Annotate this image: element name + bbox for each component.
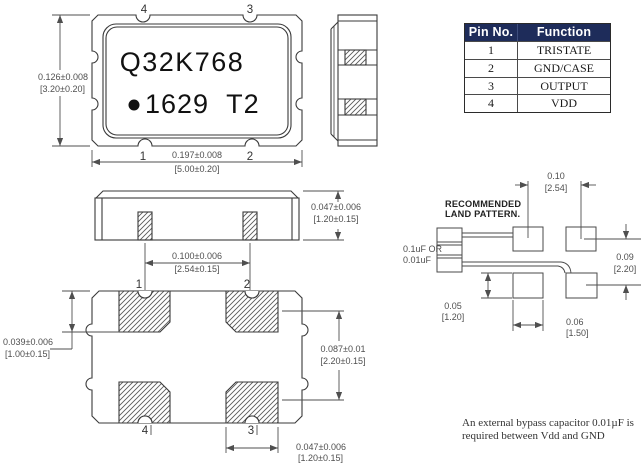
pin-function-table: Pin No. Function 1 TRISTATE 2 GND/CASE 3… — [464, 23, 611, 113]
note-line2: required between Vdd and GND — [462, 430, 644, 443]
dim-pad-width-mm: [1.20±0.15] — [298, 453, 343, 463]
pin1-indicator-dot — [129, 100, 140, 111]
table-row: 4 VDD — [465, 94, 610, 112]
note-line1: An external bypass capacitor 0.01µF is — [462, 417, 644, 430]
pin-table-header-pin: Pin No. — [465, 24, 517, 41]
capacitor-traces — [462, 233, 571, 273]
pin-label-4: 4 — [141, 4, 148, 16]
dim-pad-length-in: 0.039±0.006 — [3, 337, 53, 347]
dim-pad-width-in: 0.047±0.006 — [296, 442, 346, 452]
part-marking-line1: Q32K768 — [120, 47, 245, 77]
pin-label-3: 3 — [247, 4, 253, 16]
dim-side-height-mm: [1.20±0.15] — [314, 214, 359, 224]
dim-row-pitch-mm: [2.20±0.15] — [321, 356, 366, 366]
dim-lp-pitch-y-in: 0.09 — [616, 252, 634, 262]
side-view-dimension-text: 0.047±0.006 [1.20±0.15] 0.100±0.006 [2.5… — [172, 202, 361, 274]
lid-outline-outer — [103, 24, 291, 138]
land-pattern-title-line1: RECOMMENDED — [445, 199, 521, 209]
land-pad-4 — [513, 273, 543, 298]
top-view-pin-labels: 4 3 1 2 — [140, 4, 253, 163]
dim-lp-pitch-y-mm: [2.20] — [614, 264, 637, 274]
pin-label-1: 1 — [136, 279, 142, 291]
oscillator-datasheet-drawing: Q32K768 1629 T2 4 3 1 2 0.126±0.008 [3.2… — [0, 0, 644, 463]
pin-label-3: 3 — [248, 425, 254, 437]
bottom-view-dimensions — [50, 291, 344, 453]
pin-number: 3 — [465, 78, 517, 95]
table-row: 1 TRISTATE — [465, 41, 610, 59]
top-view-marking: Q32K768 1629 T2 — [120, 47, 260, 119]
dim-top-height-in: 0.126±0.008 — [38, 72, 88, 82]
dim-lp-pitch-x-mm: [2.54] — [545, 183, 568, 193]
capacitor-value-line2: 0.01uF — [403, 255, 432, 265]
land-pattern-drawing — [437, 227, 597, 298]
part-marking-line2: 1629 T2 — [145, 89, 260, 119]
pin-label-1: 1 — [140, 151, 146, 163]
top-view-drawing — [92, 15, 302, 146]
dim-pad-length-mm: [1.00±0.15] — [5, 349, 50, 359]
side-view-front-drawing — [95, 191, 299, 240]
dim-lp-pad-width-mm: [1.50] — [566, 328, 589, 338]
castellation-pad — [345, 50, 366, 65]
dim-top-width-in: 0.197±0.008 — [172, 150, 222, 160]
package-outline — [92, 15, 302, 146]
table-row: 3 OUTPUT — [465, 77, 610, 95]
pin-number: 1 — [465, 42, 517, 59]
pin-label-2: 2 — [244, 279, 250, 291]
dim-side-height-in: 0.047±0.006 — [311, 202, 361, 212]
pin-label-4: 4 — [142, 425, 149, 437]
dim-pad-pitch-in: 0.100±0.006 — [172, 251, 222, 261]
pin-number: 2 — [465, 60, 517, 77]
side-view-right-drawing — [331, 15, 377, 146]
land-pattern-title-line2: LAND PATTERN. — [445, 209, 520, 219]
dim-lp-pad-height-in: 0.05 — [444, 301, 462, 311]
dim-lp-pad-width-in: 0.06 — [566, 317, 584, 327]
solder-pad — [138, 212, 152, 240]
dim-row-pitch-in: 0.087±0.01 — [321, 344, 366, 354]
pin-function: GND/CASE — [517, 60, 610, 77]
bypass-capacitor-note: An external bypass capacitor 0.01µF is r… — [462, 417, 644, 443]
castellation-pad — [345, 99, 366, 115]
dim-pad-pitch-mm: [2.54±0.15] — [175, 264, 220, 274]
pin-function: VDD — [517, 95, 610, 112]
bottom-view-drawing — [86, 291, 308, 423]
pin-label-2: 2 — [247, 151, 253, 163]
pin-function: TRISTATE — [517, 42, 610, 59]
dim-lp-pitch-x-in: 0.10 — [547, 171, 565, 181]
capacitor-value-line1: 0.1uF OR — [403, 244, 443, 254]
pin-number: 4 — [465, 95, 517, 112]
top-view-dimension-text: 0.126±0.008 [3.20±0.20] 0.197±0.008 [5.0… — [38, 72, 222, 174]
pin-table-header-row: Pin No. Function — [465, 24, 610, 41]
table-row: 2 GND/CASE — [465, 59, 610, 77]
solder-pad — [243, 212, 257, 240]
pin-function: OUTPUT — [517, 78, 610, 95]
dim-lp-pad-height-mm: [1.20] — [442, 312, 465, 322]
land-pad-3 — [566, 273, 597, 298]
lid-profile — [96, 191, 298, 198]
dim-top-height-mm: [3.20±0.20] — [40, 84, 85, 94]
dim-top-width-mm: [5.00±0.20] — [175, 164, 220, 174]
pin-table-header-function: Function — [517, 24, 610, 41]
